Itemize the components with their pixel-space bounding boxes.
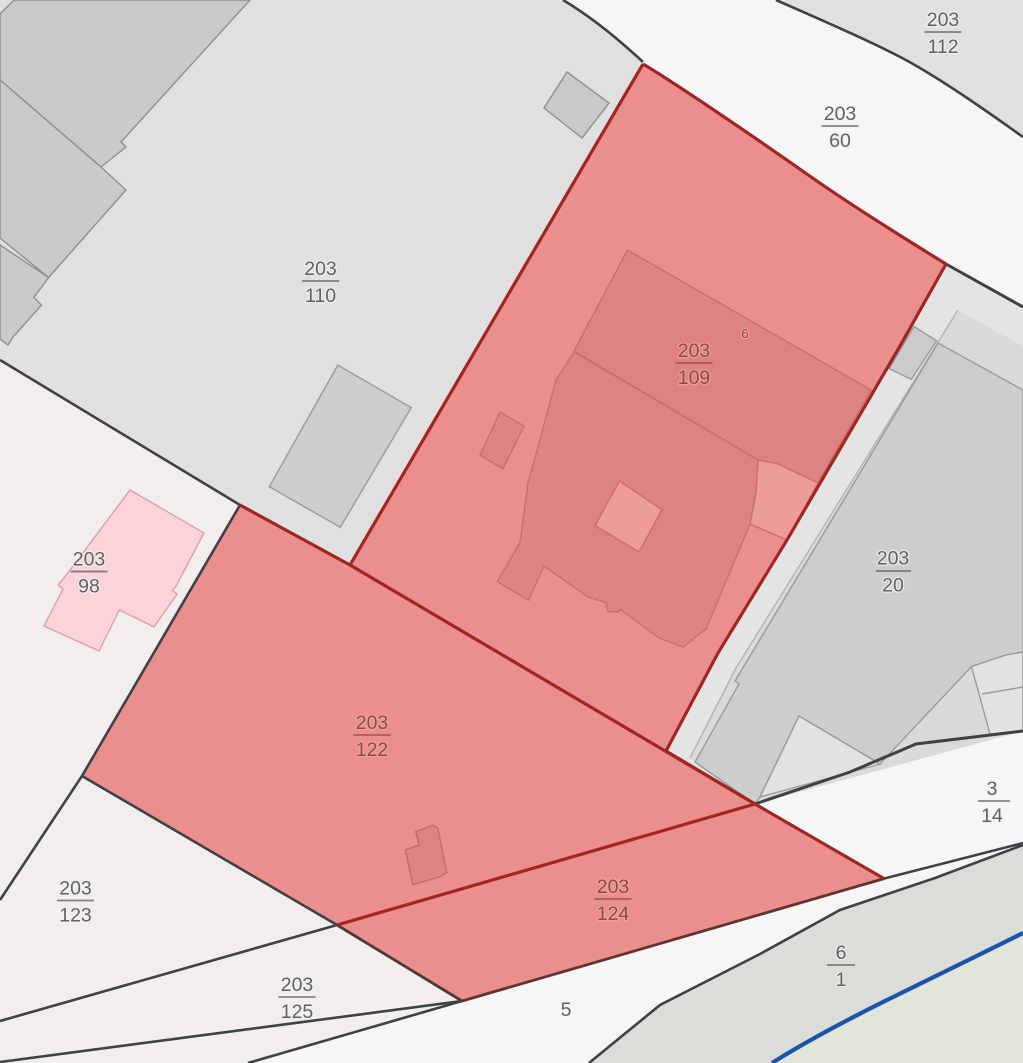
svg-text:203: 203 bbox=[356, 712, 389, 734]
svg-text:124: 124 bbox=[597, 903, 630, 925]
svg-text:203: 203 bbox=[281, 974, 314, 996]
svg-text:122: 122 bbox=[356, 739, 389, 761]
svg-text:203: 203 bbox=[597, 876, 630, 898]
svg-text:125: 125 bbox=[281, 1001, 314, 1023]
svg-text:6: 6 bbox=[836, 942, 847, 964]
svg-text:14: 14 bbox=[981, 805, 1003, 827]
svg-text:203: 203 bbox=[73, 549, 106, 571]
svg-text:5: 5 bbox=[561, 999, 572, 1021]
svg-text:203: 203 bbox=[304, 258, 337, 280]
svg-text:98: 98 bbox=[78, 576, 100, 598]
svg-text:203: 203 bbox=[824, 103, 857, 125]
svg-text:6: 6 bbox=[741, 326, 748, 341]
svg-text:203: 203 bbox=[59, 878, 92, 900]
svg-text:60: 60 bbox=[829, 130, 851, 152]
svg-text:112: 112 bbox=[927, 36, 958, 58]
svg-text:3: 3 bbox=[987, 778, 998, 800]
svg-text:123: 123 bbox=[59, 905, 92, 927]
svg-text:20: 20 bbox=[882, 575, 904, 597]
svg-text:203: 203 bbox=[927, 9, 960, 31]
svg-text:110: 110 bbox=[305, 285, 336, 307]
svg-text:203: 203 bbox=[678, 340, 711, 362]
svg-text:1: 1 bbox=[836, 969, 847, 991]
svg-text:203: 203 bbox=[877, 548, 910, 570]
svg-text:109: 109 bbox=[678, 367, 711, 389]
